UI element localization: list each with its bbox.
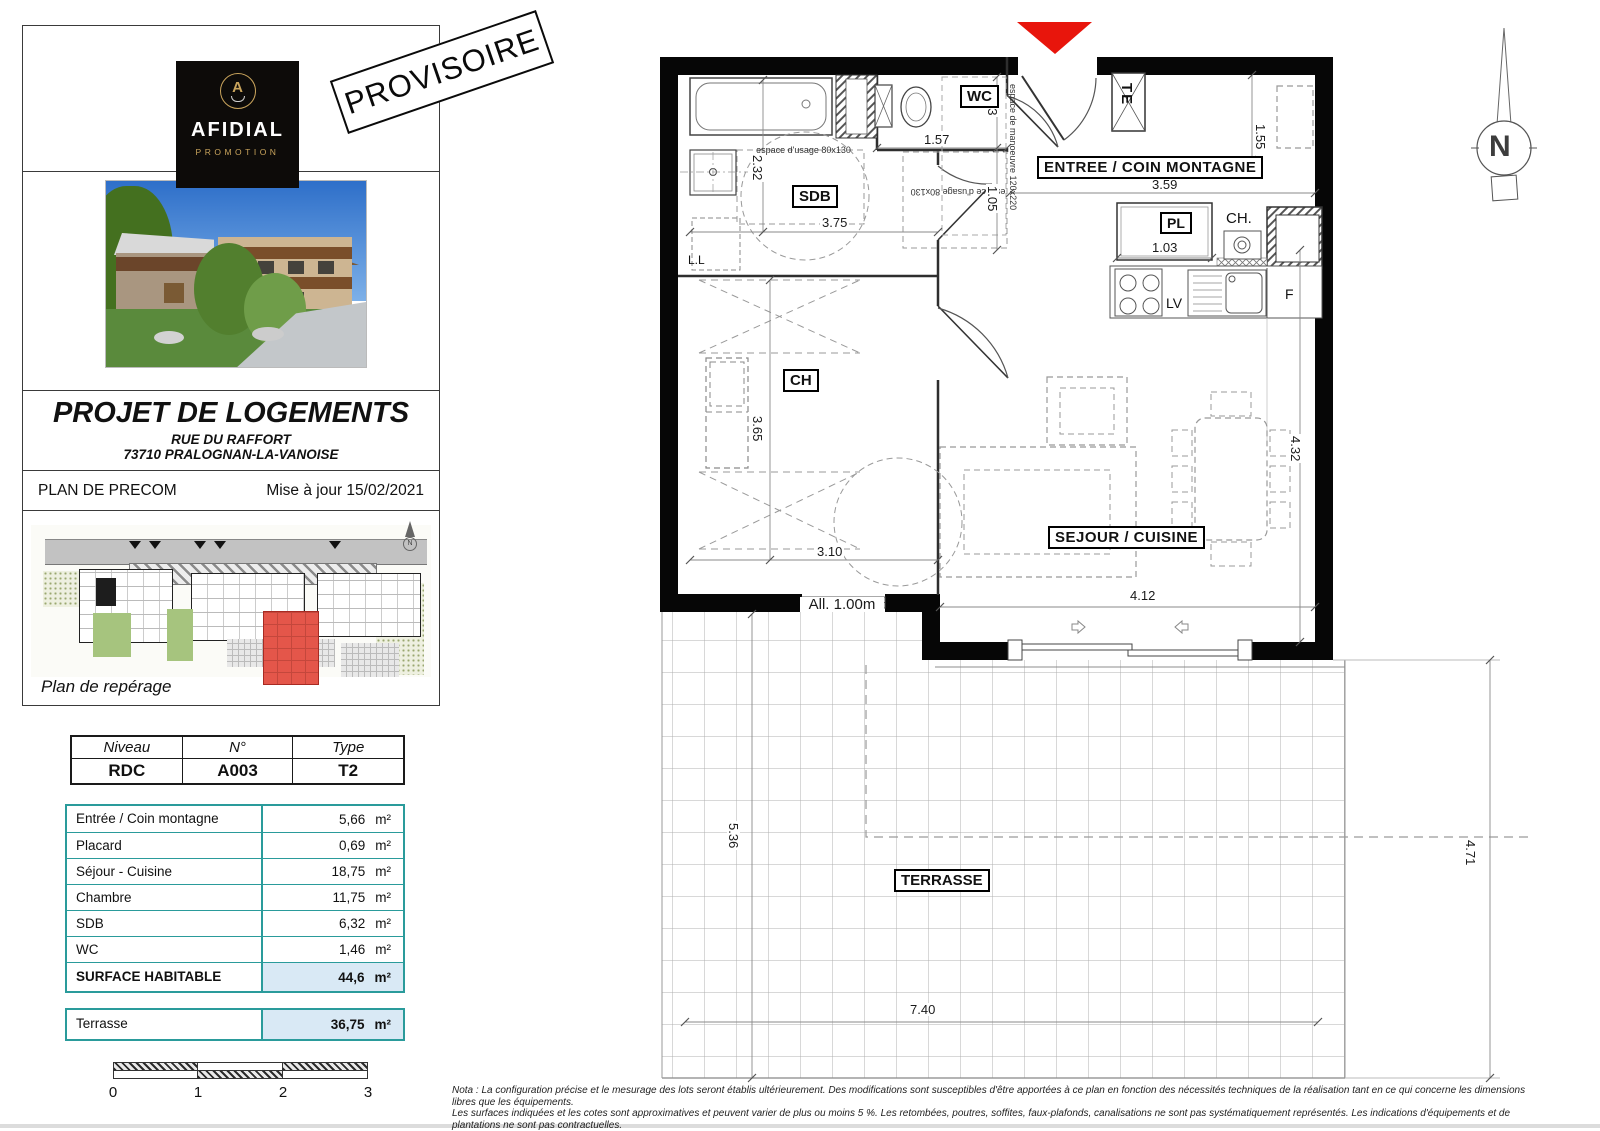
north-letter: N (1489, 130, 1511, 164)
floorplan-sheet: { "logo": {"brand": "AFIDIAL", "sub": "P… (0, 0, 1600, 1131)
dim-1-55: 1.55 (1254, 122, 1267, 151)
dim-3-75: 3.75 (820, 216, 849, 229)
dim-4-12: 4.12 (1128, 589, 1157, 602)
terrace-tiles (662, 612, 1345, 1078)
room-label-terrasse: TERRASSE (894, 869, 990, 892)
dim-1-57: 1.57 (922, 133, 951, 146)
floorplan-drawing (0, 0, 1600, 1131)
label-frigo: F (1285, 287, 1294, 301)
water-heater (1224, 231, 1261, 259)
dim-1-05: 1.05 (986, 184, 999, 213)
room-label-pl: PL (1160, 212, 1192, 234)
bench (1277, 86, 1313, 148)
north-arrow-icon (1471, 28, 1537, 201)
dim-3-65: 3.65 (751, 414, 764, 443)
label-lave-vaisselle: LV (1166, 296, 1182, 310)
sofa (940, 447, 1136, 577)
dim-5-36: 5.36 (727, 821, 740, 850)
bed (706, 358, 748, 468)
sdb-washbasin (680, 150, 748, 195)
dim-3-59: 3.59 (1150, 178, 1179, 191)
dim-4-71: 4.71 (1464, 838, 1477, 867)
armchair (1047, 377, 1127, 445)
dim-2-32: 2.32 (751, 153, 764, 182)
reserved-cross-top (699, 280, 860, 353)
room-label-sdb: SDB (792, 185, 838, 208)
room-label-entree: ENTREE / COIN MONTAGNE (1037, 156, 1263, 179)
entrance-marker-icon (1017, 22, 1092, 54)
dim-1-03: 1.03 (1150, 241, 1179, 254)
footer-note: Nota : La configuration précise et le me… (452, 1085, 1550, 1131)
footer-note-line-1: Nota : La configuration précise et le me… (452, 1085, 1550, 1108)
label-chauffe-eau: CH. (1226, 211, 1252, 226)
room-label-chambre: CH (783, 369, 819, 392)
label-tableau-electrique: TE (1119, 83, 1134, 106)
dim-7-40: 7.40 (908, 1003, 937, 1016)
label-lave-linge: L.L (688, 254, 705, 266)
bathtub (690, 78, 832, 135)
dim-3-10: 3.10 (815, 545, 844, 558)
room-label-wc: WC (960, 85, 999, 108)
footer-note-line-2: Les surfaces indiquées et les cotes sont… (452, 1108, 1550, 1131)
sliding-bay-window (1008, 640, 1252, 660)
toilet (875, 85, 931, 127)
sliding-arrows (1072, 621, 1188, 633)
room-label-sejour: SEJOUR / CUISINE (1048, 526, 1205, 549)
chambre-turning-circle (834, 458, 962, 586)
dim-4-32: 4.32 (1289, 434, 1302, 463)
annotation-manoeuvre: espace de manoeuvre 120x220 (1008, 84, 1018, 242)
label-allege: All. 1.00m (800, 597, 884, 612)
